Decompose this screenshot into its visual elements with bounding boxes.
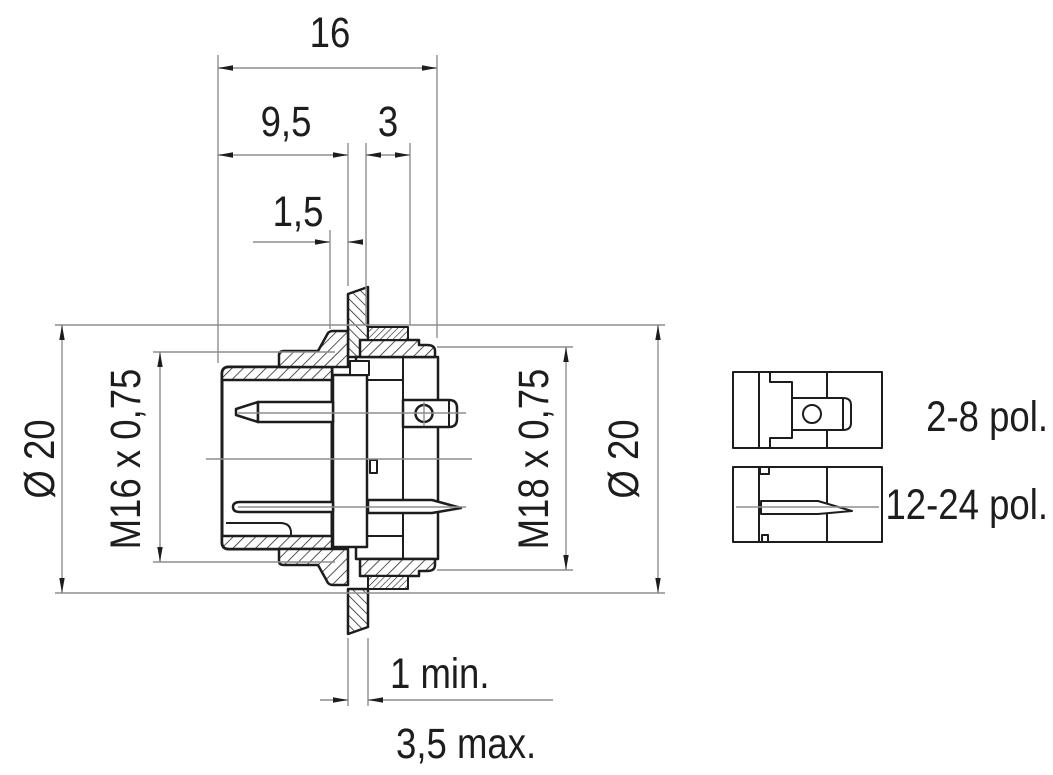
washer-bottom [368, 576, 408, 589]
variant2-key-tab-bottom [762, 535, 768, 542]
dim-shoulder-gap: 1,5 [273, 188, 324, 235]
dim-nut-width: 3 [378, 98, 398, 145]
washer-top [368, 327, 408, 340]
dim-diameter-right: Ø 20 [600, 419, 647, 498]
dim-panel-min: 1 min. [390, 650, 490, 697]
main-section-view [206, 287, 472, 634]
variant-detail-2-8 [733, 372, 882, 448]
barrel-wall-bottom [222, 536, 332, 549]
dim-overall-length: 16 [310, 9, 351, 56]
barrel-wall-top [222, 367, 332, 380]
technical-drawing-page: 16 9,5 3 1,5 Ø 20 M16 x 0,75 M18 x 0,75 … [0, 0, 1053, 775]
variant1-eyelet-hole [803, 405, 821, 423]
insert-body [333, 375, 367, 547]
insert-center-key [370, 460, 377, 473]
dim-panel-max: 3,5 max. [396, 720, 536, 767]
dim-front-length: 9,5 [261, 98, 312, 145]
insert-key-tab [350, 361, 369, 375]
rear-shell [356, 357, 438, 559]
dim-thread-front: M16 x 0,75 [102, 369, 149, 550]
variant-label-12-24: 12-24 pol. [885, 481, 1048, 528]
dim-diameter-left: Ø 20 [16, 419, 63, 498]
shoulder-top [279, 331, 348, 367]
variant2-key-tab-top [760, 467, 769, 474]
variant-detail-12-24 [733, 467, 882, 542]
panel-section-bottom [348, 589, 368, 634]
flange-nut-top [360, 340, 435, 357]
dim-thread-rear: M18 x 0,75 [510, 369, 557, 550]
front-barrel [222, 367, 332, 549]
connector-dimensional-drawing: 16 9,5 3 1,5 Ø 20 M16 x 0,75 M18 x 0,75 … [0, 0, 1053, 775]
shoulder-bottom [279, 549, 348, 585]
flange-nut-bottom [360, 559, 435, 576]
variant-label-2-8: 2-8 pol. [926, 393, 1048, 440]
upper-pin-shaft [258, 402, 333, 422]
